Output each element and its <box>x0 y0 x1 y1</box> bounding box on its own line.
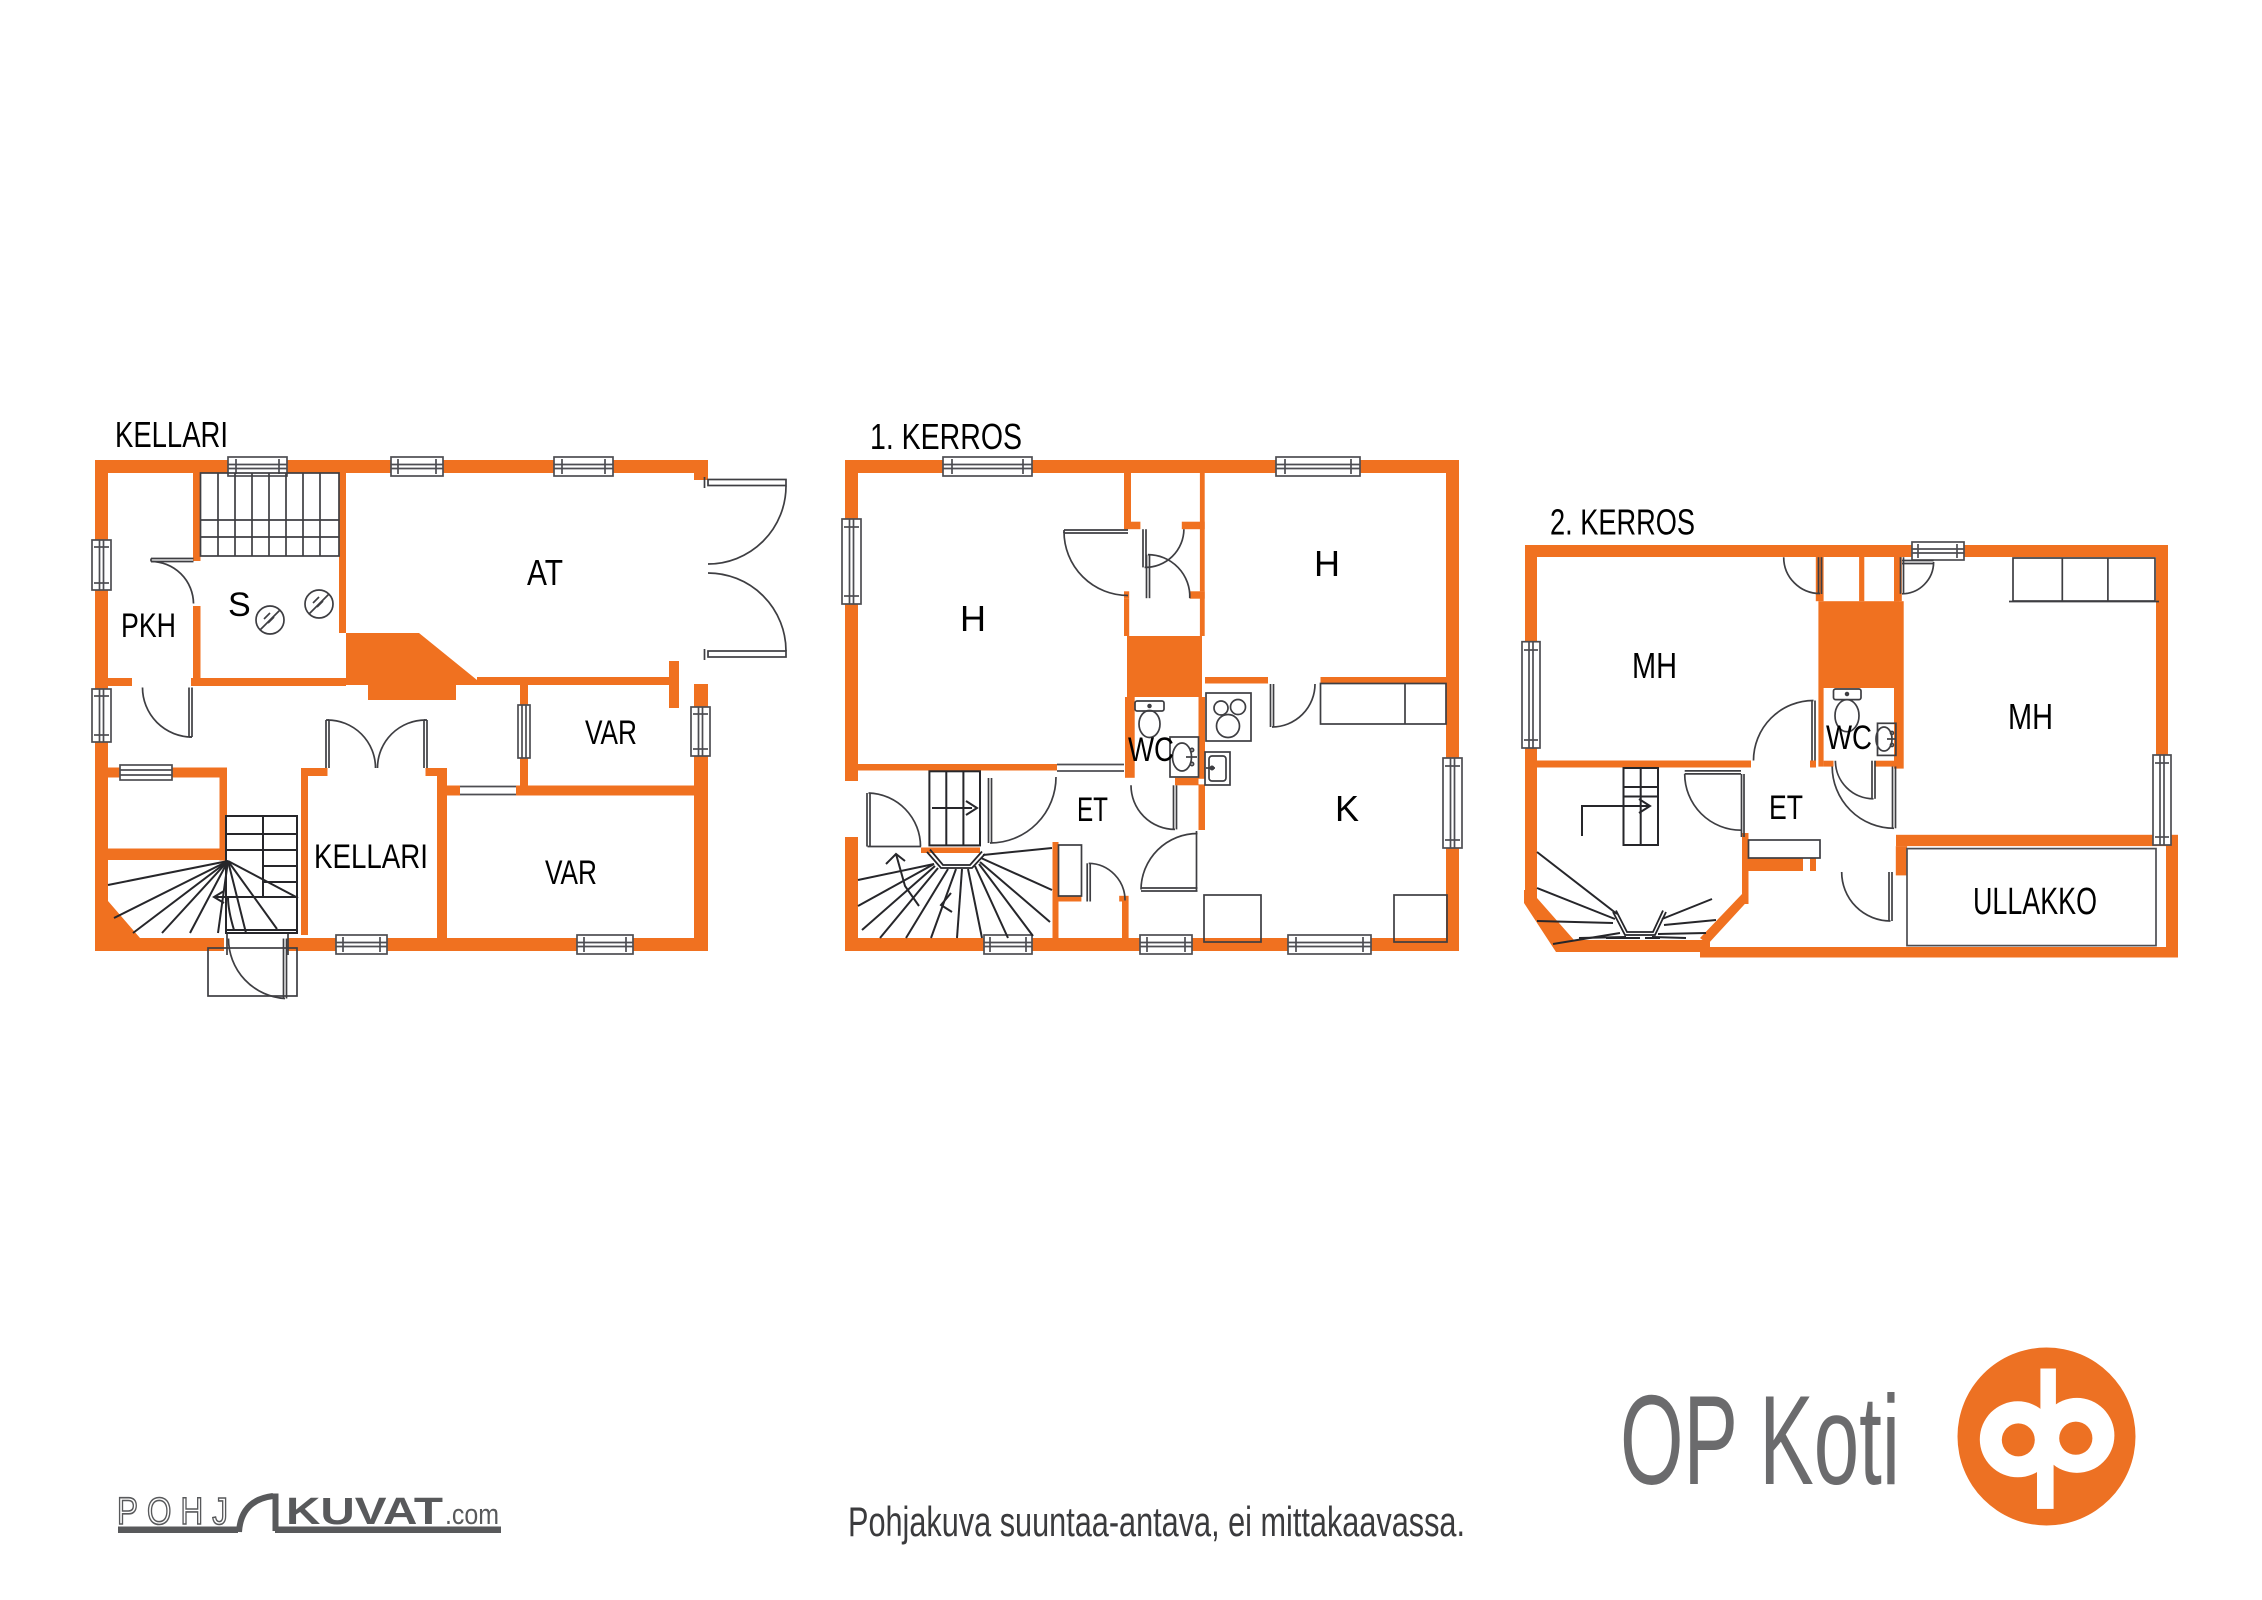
svg-text:ET: ET <box>1077 791 1108 829</box>
svg-text:H: H <box>960 598 986 639</box>
svg-text:S: S <box>228 586 251 624</box>
svg-text:ULLAKKO: ULLAKKO <box>1973 881 2097 923</box>
svg-text:WC: WC <box>1826 719 1872 757</box>
svg-text:KELLARI: KELLARI <box>314 838 428 876</box>
svg-text:MH: MH <box>1632 645 1677 686</box>
svg-text:WC: WC <box>1128 731 1174 769</box>
svg-text:1. KERROS: 1. KERROS <box>870 416 1022 457</box>
svg-text:PKH: PKH <box>121 607 176 645</box>
svg-text:VAR: VAR <box>545 854 597 892</box>
svg-text:Pohjakuva suuntaa-antava, ei m: Pohjakuva suuntaa-antava, ei mittakaavas… <box>848 1498 1465 1545</box>
svg-text:KUVAT: KUVAT <box>286 1491 443 1533</box>
svg-text:MH: MH <box>2008 696 2053 737</box>
svg-text:H: H <box>1314 543 1340 584</box>
svg-text:KELLARI: KELLARI <box>115 414 228 455</box>
svg-text:ET: ET <box>1769 789 1803 827</box>
svg-text:VAR: VAR <box>585 714 637 752</box>
svg-text:.com: .com <box>445 1499 499 1531</box>
svg-text:OP Koti: OP Koti <box>1620 1369 1900 1511</box>
svg-text:AT: AT <box>527 552 563 593</box>
svg-text:2. KERROS: 2. KERROS <box>1550 502 1695 543</box>
svg-text:K: K <box>1335 788 1359 829</box>
